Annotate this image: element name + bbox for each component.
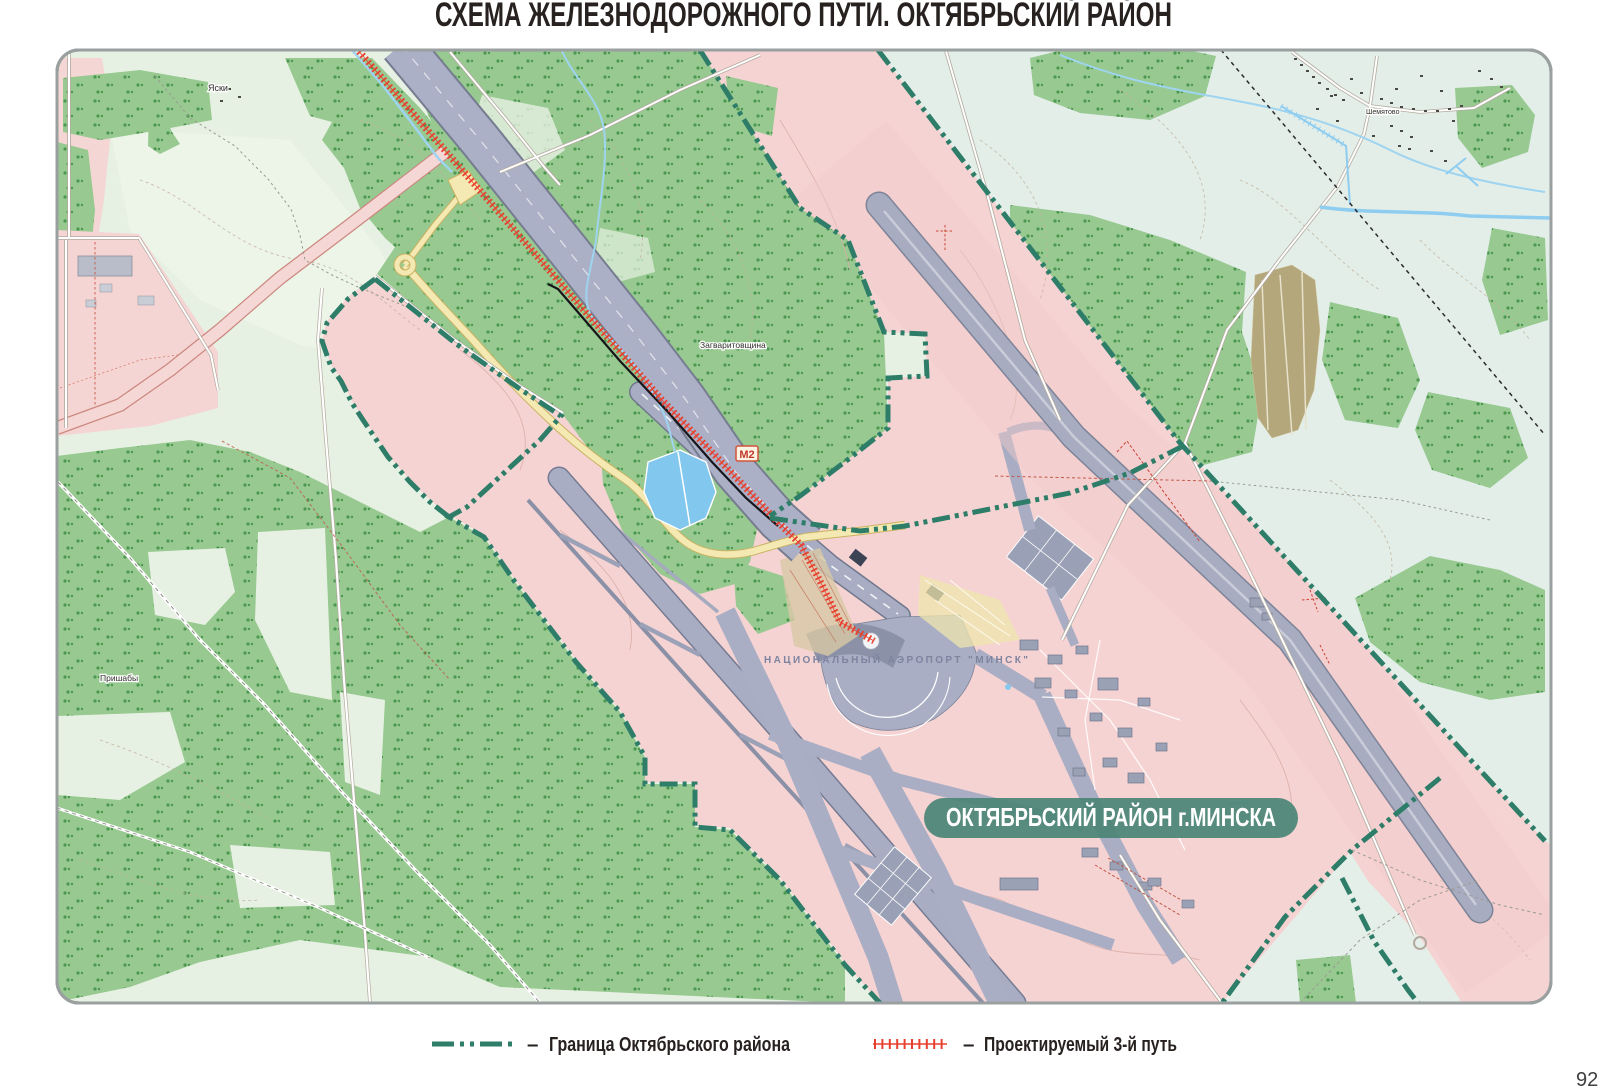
svg-text:Пришабы: Пришабы: [100, 673, 138, 683]
svg-text:Яски: Яски: [208, 83, 228, 93]
svg-text:Загваритовщина: Загваритовщина: [700, 340, 766, 350]
svg-text:ОКТЯБРЬСКИЙ РАЙОН г.МИНСКА: ОКТЯБРЬСКИЙ РАЙОН г.МИНСКА: [946, 802, 1276, 832]
svg-text:Шемятово: Шемятово: [1366, 109, 1400, 116]
svg-text:НАЦИОНАЛЬНЫЙ АЭРОПОРТ "МИНСК": НАЦИОНАЛЬНЫЙ АЭРОПОРТ "МИНСК": [764, 653, 1030, 666]
svg-text:СХЕМА ЖЕЛЕЗНОДОРОЖНОГО ПУТИ.: СХЕМА ЖЕЛЕЗНОДОРОЖНОГО ПУТИ. ОКТЯБРЬСКИЙ…: [435, 0, 1172, 34]
svg-text:Граница Октябрьского района: Граница Октябрьского района: [549, 1033, 790, 1056]
svg-text:92: 92: [1576, 1069, 1598, 1089]
svg-text:–: –: [527, 1033, 538, 1056]
svg-text:Проектируемый 3-й путь: Проектируемый 3-й путь: [984, 1033, 1177, 1056]
svg-text:–: –: [963, 1033, 974, 1056]
svg-text:М2: М2: [739, 449, 754, 461]
